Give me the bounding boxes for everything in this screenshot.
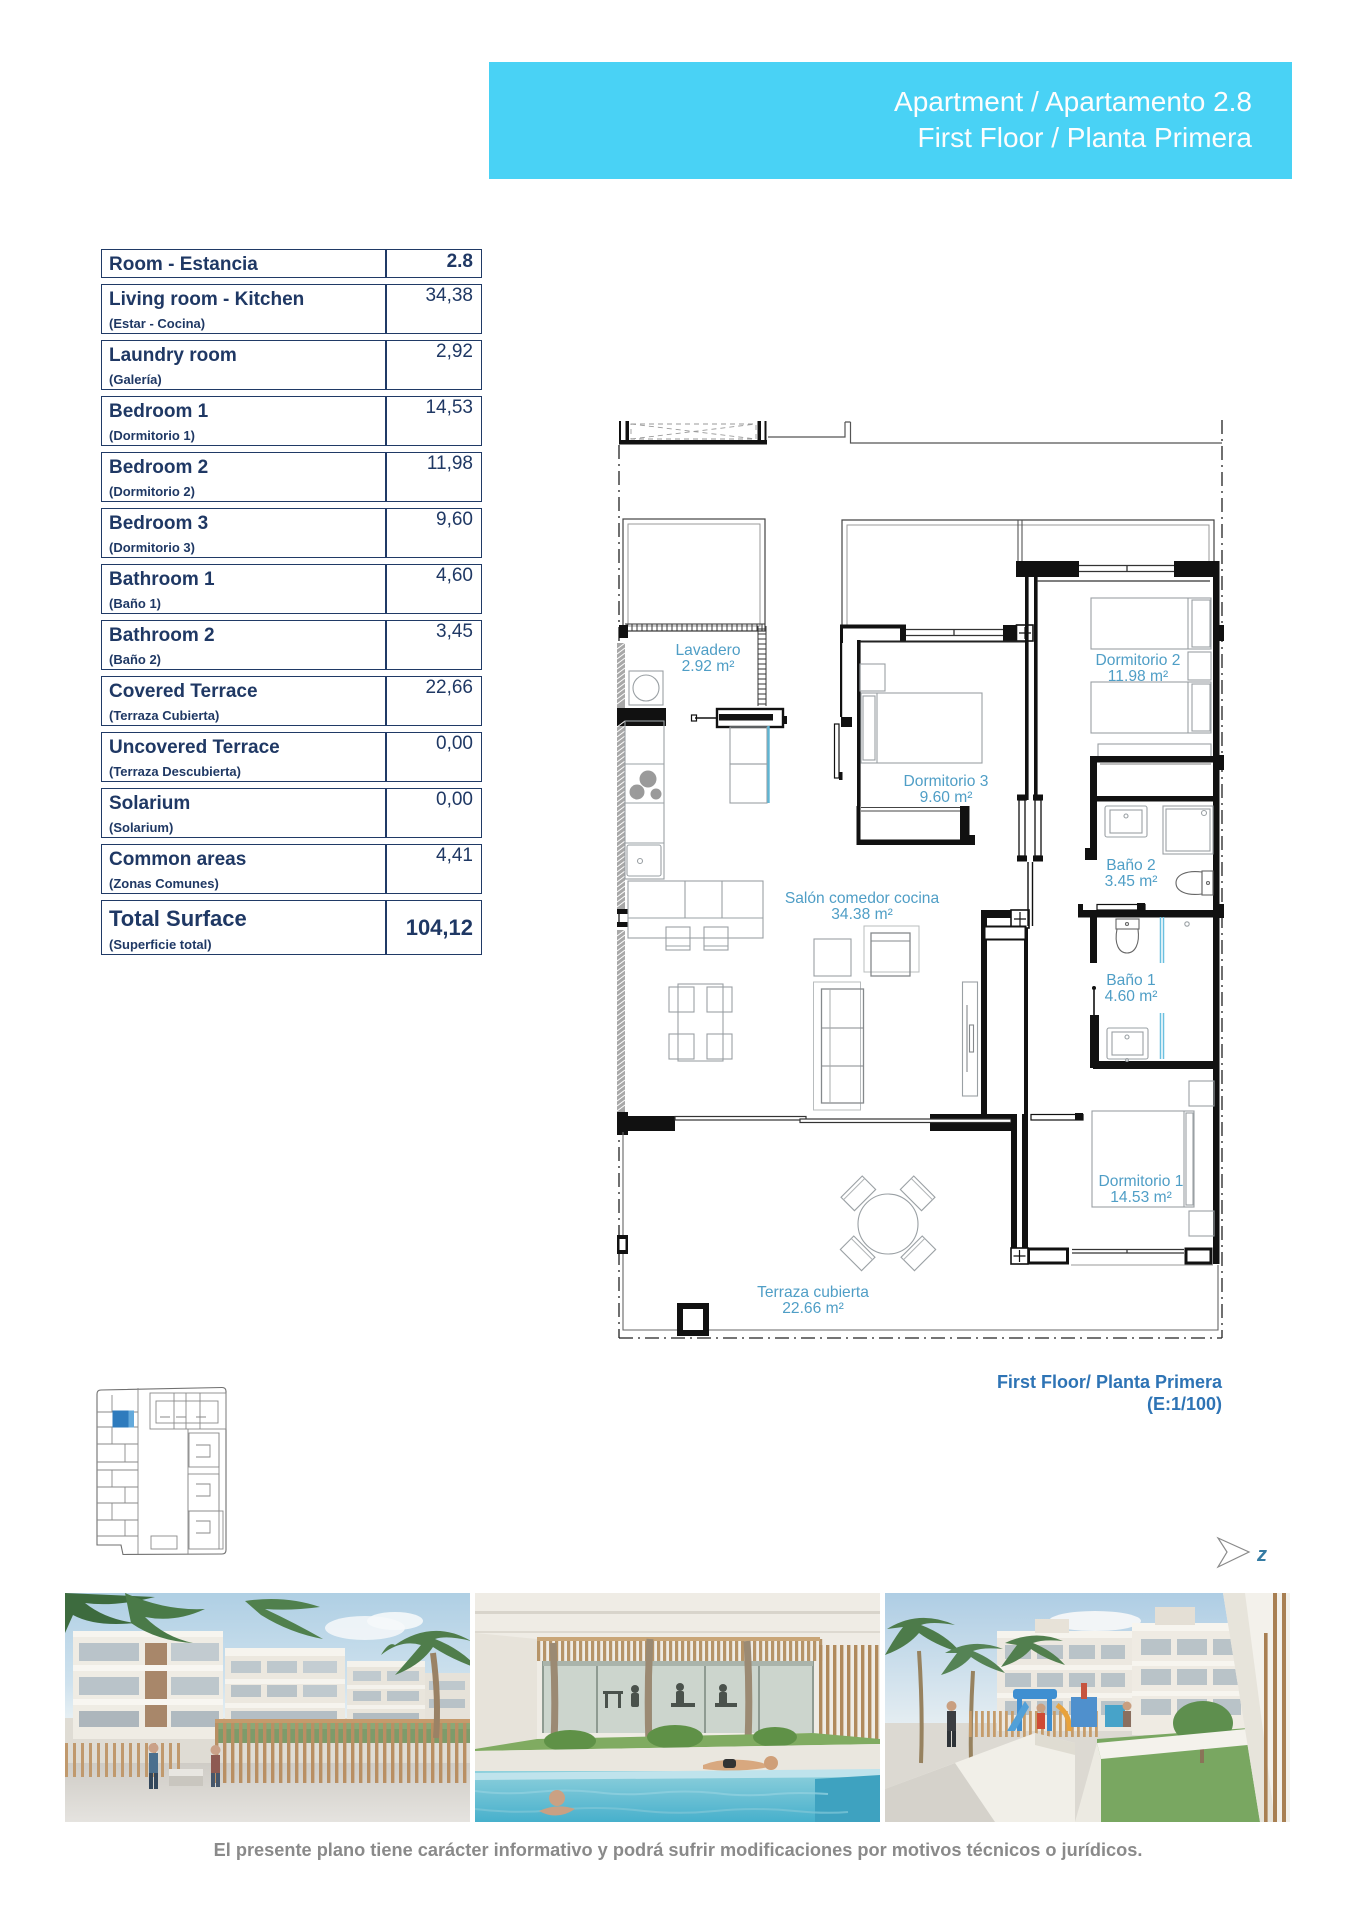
svg-text:34.38 m²: 34.38 m²	[831, 906, 893, 923]
svg-text:z: z	[1256, 1544, 1267, 1566]
svg-text:Dormitorio 1: Dormitorio 1	[1099, 1173, 1184, 1190]
svg-text:Baño 1: Baño 1	[1106, 972, 1155, 989]
svg-text:22.66 m²: 22.66 m²	[782, 1300, 844, 1317]
svg-text:11.98 m²: 11.98 m²	[1108, 668, 1168, 685]
svg-text:9.60 m²: 9.60 m²	[920, 789, 973, 806]
svg-text:3.45 m²: 3.45 m²	[1105, 873, 1158, 890]
svg-text:14.53 m²: 14.53 m²	[1110, 1189, 1172, 1206]
svg-text:Baño 2: Baño 2	[1106, 857, 1155, 874]
svg-text:4.60 m²: 4.60 m²	[1105, 988, 1158, 1005]
svg-text:Dormitorio 2: Dormitorio 2	[1096, 652, 1181, 669]
svg-text:Salón comedor cocina: Salón comedor cocina	[785, 890, 940, 907]
svg-text:2.92 m²: 2.92 m²	[682, 658, 735, 675]
svg-text:Dormitorio 3: Dormitorio 3	[904, 773, 989, 790]
svg-text:Terraza cubierta: Terraza cubierta	[757, 1284, 869, 1301]
svg-text:Lavadero: Lavadero	[675, 642, 740, 659]
